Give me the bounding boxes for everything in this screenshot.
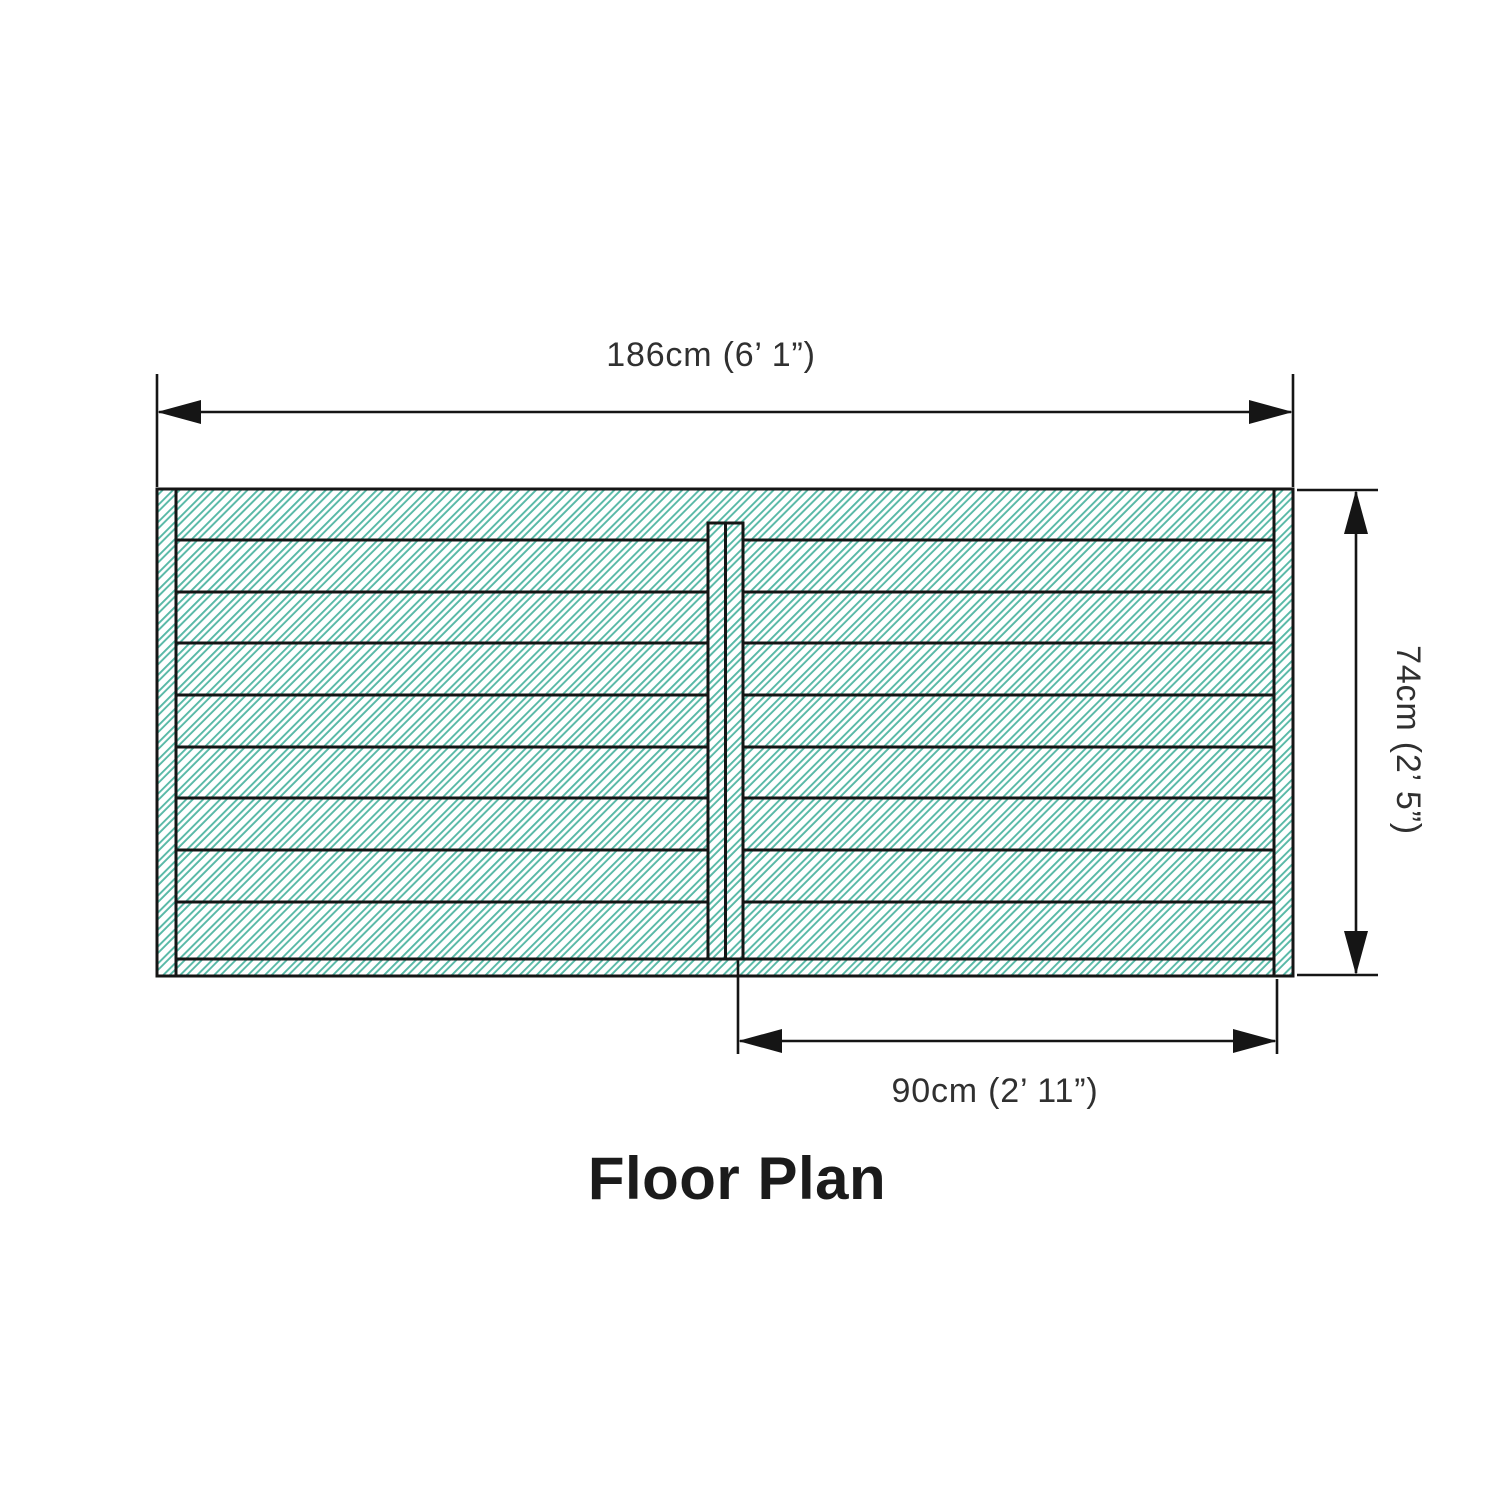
canvas: 186cm (6’ 1”) 74cm (2’ 5”) 90cm (2’ 11”)…	[0, 0, 1500, 1500]
arrowhead-up	[1344, 490, 1368, 534]
arrowhead-right	[1233, 1029, 1277, 1053]
dimension-door-label: 90cm (2’ 11”)	[892, 1072, 1099, 1110]
arrowhead-right	[1249, 400, 1293, 424]
arrowhead-down	[1344, 931, 1368, 975]
dimension-width-label: 186cm (6’ 1”)	[606, 336, 815, 374]
floor-plan-diagram: 186cm (6’ 1”) 74cm (2’ 5”) 90cm (2’ 11”)…	[0, 0, 1500, 1500]
dimension-door: 90cm (2’ 11”)	[738, 958, 1277, 1110]
arrowhead-left	[157, 400, 201, 424]
dimension-height: 74cm (2’ 5”)	[1297, 490, 1427, 975]
diagram-title: Floor Plan	[588, 1145, 886, 1212]
dimension-height-label: 74cm (2’ 5”)	[1389, 645, 1427, 835]
dimension-width: 186cm (6’ 1”)	[157, 336, 1293, 487]
arrowhead-left	[738, 1029, 782, 1053]
